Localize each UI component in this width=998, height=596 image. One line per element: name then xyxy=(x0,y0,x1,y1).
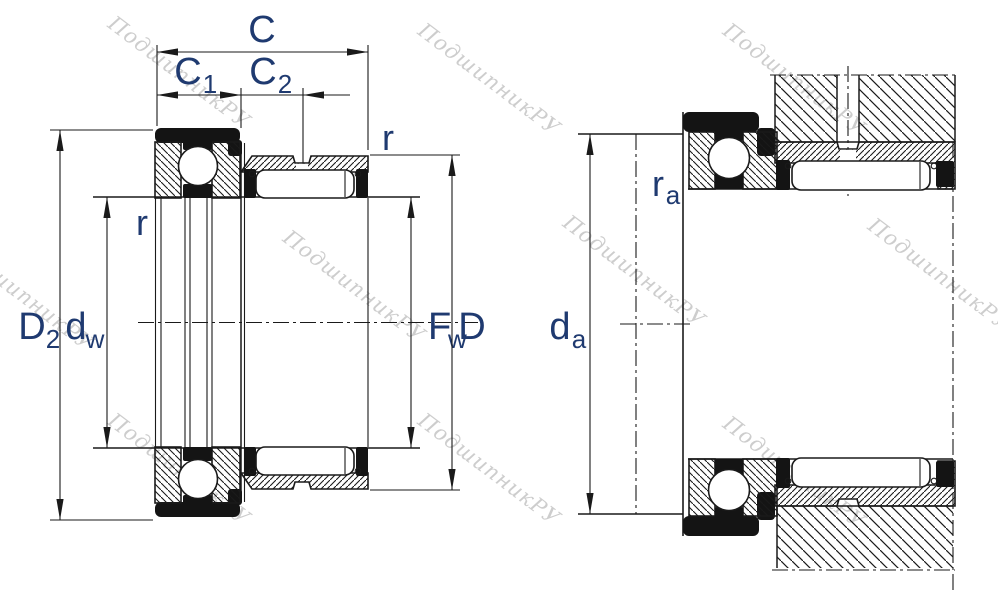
label-dw-sub: w xyxy=(85,324,105,354)
housing-bottom xyxy=(772,142,955,592)
needle-seal-right-top xyxy=(936,161,954,187)
label-dw: d xyxy=(65,306,86,348)
needle-seal-right-top xyxy=(356,169,368,198)
housing-block xyxy=(777,506,953,568)
cage-dot xyxy=(931,163,937,169)
needle-seal-right-bottom xyxy=(356,447,368,476)
bearing-drawing: ПодшипникРУ ПодшипникРУ ПодшипникРУ Подш… xyxy=(0,0,998,596)
arrowhead xyxy=(56,130,63,151)
arrowhead xyxy=(103,197,110,218)
needle-roller-bottom xyxy=(792,458,930,487)
arrowhead xyxy=(103,427,110,448)
ball-top xyxy=(179,147,218,186)
watermark-text: ПодшипникРУ xyxy=(863,213,998,336)
label-d2-sub: 2 xyxy=(46,324,60,354)
dimension-c: C xyxy=(157,9,368,56)
dimension-d2: D 2 xyxy=(18,130,63,520)
label-d2: D xyxy=(18,306,45,348)
ball-bottom xyxy=(709,470,750,511)
arrowhead xyxy=(448,469,455,490)
arrowhead xyxy=(347,48,368,55)
needle-seal-left-top xyxy=(776,160,790,190)
needle-seal-right-bottom xyxy=(936,461,954,487)
label-c1-sub: 1 xyxy=(203,69,217,99)
dimension-dw: d w xyxy=(65,197,110,448)
label-ra-sub: a xyxy=(666,180,681,210)
dimension-da: d a xyxy=(549,134,593,514)
watermark-text: ПодшипникРУ xyxy=(413,408,566,531)
arrowhead xyxy=(407,427,414,448)
watermark-text: ПодшипникРУ xyxy=(278,225,431,348)
needle-roller-top xyxy=(792,161,930,190)
needle-roller-top xyxy=(256,170,354,198)
label-c: C xyxy=(248,9,275,51)
shaft-washer-top xyxy=(155,142,181,198)
drawing-canvas: ПодшипникРУ ПодшипникРУ ПодшипникРУ Подш… xyxy=(0,0,998,596)
label-c2: C xyxy=(249,51,276,93)
watermark-text: ПодшипникРУ xyxy=(558,210,711,333)
ball-bottom xyxy=(179,460,218,499)
label-r-inner: r xyxy=(136,202,148,243)
arrowhead xyxy=(56,499,63,520)
arrowhead xyxy=(586,493,593,514)
dimension-c1-c2: C 1 C 2 xyxy=(157,51,350,99)
housing-block xyxy=(859,75,955,142)
arrowhead xyxy=(303,91,324,98)
label-r-outer: r xyxy=(382,117,394,158)
label-c1: C xyxy=(174,51,201,93)
arrowhead xyxy=(448,155,455,176)
left-view: C C 1 C 2 D 2 d w xyxy=(18,9,485,520)
watermark-layer: ПодшипникРУ ПодшипникРУ ПодшипникРУ Подш… xyxy=(0,11,998,534)
needle-roller-bottom xyxy=(256,447,354,475)
right-view: d a r a xyxy=(549,66,958,592)
cage-dot xyxy=(931,478,937,484)
label-da-sub: a xyxy=(572,324,587,354)
watermark-text: ПодшипникРУ xyxy=(413,18,566,141)
label-da: d xyxy=(549,306,570,348)
label-c2-sub: 2 xyxy=(278,69,292,99)
arrowhead xyxy=(407,197,414,218)
ball-top xyxy=(709,138,750,179)
label-ra: r xyxy=(652,163,664,204)
arrowhead xyxy=(586,134,593,155)
label-d: D xyxy=(458,306,485,348)
housing-block xyxy=(775,75,837,142)
shaft-washer-bottom xyxy=(155,447,181,503)
